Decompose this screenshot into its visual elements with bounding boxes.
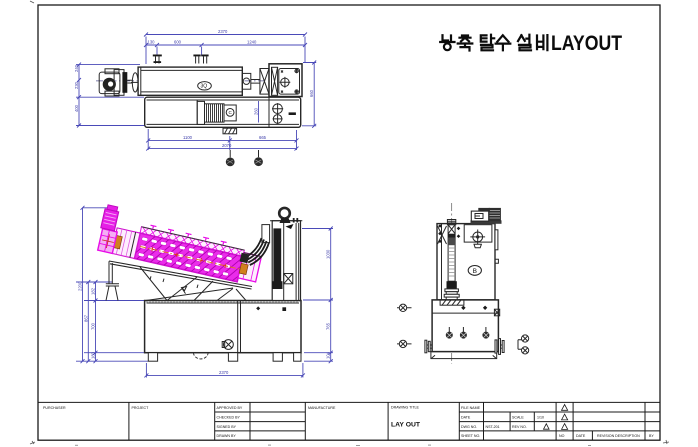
svg-text:104: 104: [326, 351, 331, 359]
svg-text:PURCHASER: PURCHASER: [43, 406, 66, 410]
svg-text:BY: BY: [649, 434, 654, 438]
svg-text:2200: 2200: [78, 281, 83, 291]
svg-text:SHEET NO.: SHEET NO.: [461, 434, 480, 438]
svg-text:DATE: DATE: [461, 415, 471, 419]
svg-text:NST-201: NST-201: [486, 425, 500, 429]
svg-text:182: 182: [91, 287, 96, 295]
svg-text:240: 240: [74, 64, 79, 72]
svg-text:LAYOUT: LAYOUT: [551, 32, 622, 55]
svg-text:700: 700: [91, 322, 96, 330]
svg-text:DRAWN BY: DRAWN BY: [217, 434, 237, 438]
svg-text:1030: 1030: [326, 249, 331, 259]
svg-text:130: 130: [148, 40, 156, 45]
svg-text:REV NO.: REV NO.: [512, 425, 527, 429]
svg-text:600: 600: [174, 40, 182, 45]
svg-text:DATE: DATE: [576, 434, 586, 438]
svg-text:665: 665: [259, 135, 267, 140]
svg-text:PROJECT: PROJECT: [132, 406, 150, 410]
svg-text:180: 180: [91, 351, 96, 359]
svg-text:CHECKED BY: CHECKED BY: [217, 415, 241, 419]
svg-text:DWG NO.: DWG NO.: [461, 425, 477, 429]
svg-text:230: 230: [74, 81, 79, 89]
svg-text:APPROVED BY: APPROVED BY: [217, 406, 243, 410]
svg-text:SCALE: SCALE: [512, 415, 524, 419]
svg-text:2370: 2370: [218, 29, 228, 34]
svg-text:1/10: 1/10: [537, 415, 544, 419]
svg-text:660: 660: [309, 89, 314, 97]
svg-text:NO: NO: [559, 434, 565, 438]
svg-text:765: 765: [326, 322, 331, 330]
svg-text:2070: 2070: [222, 143, 232, 148]
svg-text:1240: 1240: [247, 40, 257, 45]
svg-text:MANUFACTURE: MANUFACTURE: [308, 406, 336, 410]
svg-text:SIGNED BY: SIGNED BY: [217, 425, 237, 429]
svg-text:LAY OUT: LAY OUT: [391, 422, 421, 429]
svg-text:B: B: [473, 268, 477, 275]
svg-text:400: 400: [74, 104, 79, 112]
svg-text:867: 867: [83, 314, 88, 322]
svg-text:260: 260: [254, 107, 259, 115]
svg-text:3Q: 3Q: [201, 84, 208, 90]
svg-text:FILE NAME: FILE NAME: [461, 406, 481, 410]
svg-text:1100: 1100: [183, 135, 193, 140]
svg-text:2370: 2370: [219, 370, 229, 375]
svg-text:DRAWING TITLE: DRAWING TITLE: [391, 405, 420, 409]
svg-text:REVISION DESCRIPTION: REVISION DESCRIPTION: [597, 434, 640, 438]
